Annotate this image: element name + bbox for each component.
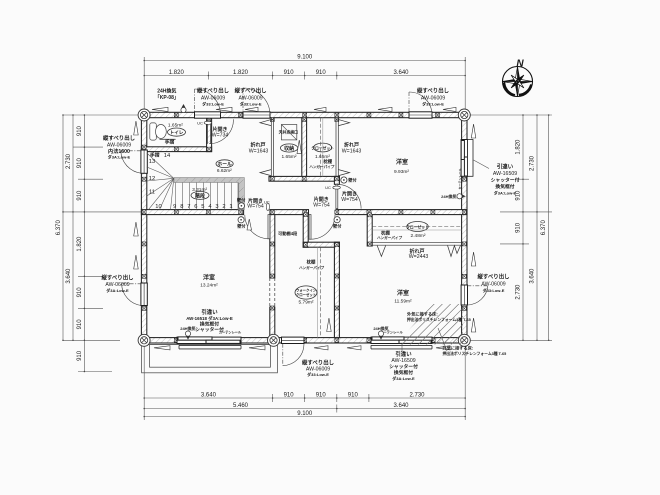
svg-text:W=734: W=734 bbox=[212, 132, 229, 138]
svg-text:「KP-08」: 「KP-08」 bbox=[155, 94, 179, 101]
svg-text:洋室: 洋室 bbox=[397, 289, 409, 297]
svg-text:洋室: 洋室 bbox=[396, 158, 408, 166]
svg-text:縦すべり出し: 縦すべり出し bbox=[302, 358, 334, 366]
svg-text:12: 12 bbox=[149, 176, 155, 182]
svg-text:2: 2 bbox=[222, 204, 225, 210]
svg-text:クローゼット: クローゼット bbox=[296, 292, 316, 297]
svg-text:24H換気: 24H換気 bbox=[180, 325, 195, 331]
svg-text:9.93m²: 9.93m² bbox=[394, 169, 409, 175]
svg-text:3.640: 3.640 bbox=[530, 268, 536, 284]
svg-text:10: 10 bbox=[155, 204, 161, 210]
svg-text:910: 910 bbox=[77, 125, 83, 136]
svg-text:910: 910 bbox=[316, 393, 327, 399]
svg-text:縦すべり出し: 縦すべり出し bbox=[103, 134, 135, 142]
svg-text:天井点検口: 天井点検口 bbox=[279, 129, 299, 134]
svg-text:壁付: 壁付 bbox=[237, 196, 246, 203]
svg-text:2.730: 2.730 bbox=[530, 155, 536, 171]
svg-text:ウォークイン: ウォークイン bbox=[296, 287, 317, 292]
svg-text:3: 3 bbox=[215, 204, 218, 210]
svg-text:シャッター付: シャッター付 bbox=[491, 177, 520, 184]
svg-text:11: 11 bbox=[149, 190, 155, 196]
svg-text:ダ33:Low-E: ダ33:Low-E bbox=[483, 287, 505, 293]
svg-text:5.79m²: 5.79m² bbox=[299, 300, 314, 306]
svg-text:ダ33:Low-E: ダ33:Low-E bbox=[422, 100, 444, 106]
svg-text:5: 5 bbox=[201, 204, 204, 210]
svg-text:6.62m²: 6.62m² bbox=[217, 168, 232, 174]
svg-text:収納: 収納 bbox=[284, 145, 294, 152]
svg-text:1.820: 1.820 bbox=[169, 70, 185, 76]
svg-text:W=1643: W=1643 bbox=[249, 148, 269, 154]
svg-text:24H換気: 24H換気 bbox=[157, 87, 176, 94]
svg-text:AW-16509: AW-16509 bbox=[391, 358, 415, 364]
svg-text:13: 13 bbox=[149, 159, 155, 165]
svg-text:縦すべり出し: 縦すべり出し bbox=[102, 274, 134, 282]
svg-text:24H換気: 24H換気 bbox=[373, 325, 388, 331]
svg-text:トイレ: トイレ bbox=[170, 130, 184, 135]
svg-text:ダ33:Low-E: ダ33:Low-E bbox=[307, 371, 329, 377]
svg-text:換気框付: 換気框付 bbox=[495, 183, 514, 190]
svg-text:換気框付: 換気框付 bbox=[200, 320, 219, 327]
svg-text:ダ33:Low-E: ダ33:Low-E bbox=[240, 100, 262, 106]
svg-text:換気框付: 換気框付 bbox=[394, 369, 413, 376]
svg-text:UC: UC bbox=[197, 121, 203, 126]
svg-text:ダ33:Low-E: ダ33:Low-E bbox=[202, 100, 224, 106]
svg-text:壁付: 壁付 bbox=[237, 222, 246, 229]
svg-text:910: 910 bbox=[77, 190, 83, 201]
svg-text:可動棚4段: 可動棚4段 bbox=[278, 230, 298, 237]
svg-text:14: 14 bbox=[164, 153, 171, 159]
svg-text:引違い: 引違い bbox=[395, 350, 412, 358]
svg-text:W=1643: W=1643 bbox=[342, 148, 362, 154]
svg-text:1: 1 bbox=[229, 204, 232, 210]
svg-text:3.640: 3.640 bbox=[201, 393, 217, 399]
svg-text:2.730: 2.730 bbox=[66, 153, 72, 169]
svg-text:9.100: 9.100 bbox=[297, 411, 313, 417]
svg-text:ダ3A:Low-E: ダ3A:Low-E bbox=[106, 287, 129, 293]
svg-text:階段: 階段 bbox=[195, 192, 205, 199]
svg-text:ハンガーパイプ: ハンガーパイプ bbox=[299, 265, 325, 270]
svg-text:910: 910 bbox=[77, 158, 83, 169]
svg-text:手摺: 手摺 bbox=[150, 152, 160, 159]
svg-text:UC: UC bbox=[325, 185, 331, 190]
svg-text:2.730: 2.730 bbox=[409, 393, 425, 399]
svg-text:押出法ポリスチレンフォーム3種 T-65: 押出法ポリスチレンフォーム3種 T-65 bbox=[443, 351, 507, 356]
svg-text:壁付: 壁付 bbox=[348, 177, 357, 184]
svg-text:910: 910 bbox=[77, 350, 83, 361]
svg-text:910: 910 bbox=[284, 393, 295, 399]
svg-text:カーテンレール: カーテンレール bbox=[219, 330, 242, 335]
svg-text:6.370: 6.370 bbox=[56, 220, 62, 236]
svg-text:910: 910 bbox=[77, 319, 83, 330]
svg-text:外気に接する床:: 外気に接する床: bbox=[407, 310, 438, 317]
svg-text:1.65m²: 1.65m² bbox=[168, 123, 183, 129]
svg-text:5.460: 5.460 bbox=[233, 403, 249, 409]
svg-text:押出法ポリスチレンフォーム3種 T-65: 押出法ポリスチレンフォーム3種 T-65 bbox=[407, 317, 471, 322]
svg-text:ダ3A:Low-E: ダ3A:Low-E bbox=[108, 154, 131, 160]
svg-text:1.820: 1.820 bbox=[77, 236, 83, 252]
svg-text:1.820: 1.820 bbox=[516, 139, 522, 155]
svg-text:8: 8 bbox=[180, 204, 183, 210]
svg-text:7: 7 bbox=[187, 204, 190, 210]
svg-text:縦すべり出し: 縦すべり出し bbox=[478, 273, 510, 281]
svg-text:縦すべり出し: 縦すべり出し bbox=[417, 86, 449, 94]
svg-text:AW-06009: AW-06009 bbox=[481, 281, 505, 287]
svg-text:手摺: 手摺 bbox=[165, 138, 175, 145]
svg-text:9.100: 9.100 bbox=[297, 55, 313, 61]
svg-text:N: N bbox=[516, 59, 524, 70]
svg-text:910: 910 bbox=[77, 287, 83, 298]
svg-text:3.640: 3.640 bbox=[393, 403, 409, 409]
svg-text:引違い: 引違い bbox=[497, 163, 514, 171]
svg-text:ダ3A:Low-E: ダ3A:Low-E bbox=[392, 375, 415, 381]
svg-text:910: 910 bbox=[348, 393, 359, 399]
svg-text:910: 910 bbox=[284, 70, 295, 76]
svg-text:W=754: W=754 bbox=[341, 197, 358, 203]
svg-text:外気に接する床:: 外気に接する床: bbox=[443, 345, 474, 352]
svg-text:1.820: 1.820 bbox=[233, 70, 249, 76]
svg-text:縦すべり出し: 縦すべり出し bbox=[197, 86, 229, 94]
svg-text:ホール: ホール bbox=[217, 161, 232, 168]
svg-text:2.730: 2.730 bbox=[516, 284, 522, 300]
svg-text:ダ3A:Low-E: ダ3A:Low-E bbox=[494, 190, 517, 196]
svg-text:3.31m²: 3.31m² bbox=[192, 187, 207, 193]
svg-text:910: 910 bbox=[516, 190, 522, 201]
svg-text:6: 6 bbox=[194, 204, 197, 210]
svg-text:シャッター付: シャッター付 bbox=[389, 363, 418, 370]
svg-text:縦すべり出し: 縦すべり出し bbox=[235, 86, 267, 94]
svg-text:11.59m²: 11.59m² bbox=[394, 299, 412, 305]
svg-text:ハンガーパイプ: ハンガーパイプ bbox=[309, 164, 335, 169]
svg-text:910: 910 bbox=[516, 222, 522, 233]
svg-text:3.640: 3.640 bbox=[66, 268, 72, 284]
svg-text:W=754: W=754 bbox=[247, 204, 264, 210]
svg-text:910: 910 bbox=[316, 70, 327, 76]
svg-text:枕棚: 枕棚 bbox=[307, 258, 316, 265]
svg-text:9: 9 bbox=[173, 204, 176, 210]
svg-text:W=2443: W=2443 bbox=[409, 254, 429, 260]
svg-text:洋室: 洋室 bbox=[203, 274, 215, 282]
svg-text:AW-16509: AW-16509 bbox=[493, 171, 517, 177]
svg-text:AW-06009: AW-06009 bbox=[107, 143, 131, 149]
svg-text:カーテンレール: カーテンレール bbox=[457, 168, 462, 189]
svg-text:W=754: W=754 bbox=[313, 202, 330, 208]
svg-text:ハンガーパイプ: ハンガーパイプ bbox=[377, 235, 403, 240]
svg-text:13.24m²: 13.24m² bbox=[200, 283, 218, 289]
svg-text:2.48m²: 2.48m² bbox=[411, 233, 426, 239]
svg-text:AW-16518 ダ3A:Low-E: AW-16518 ダ3A:Low-E bbox=[186, 315, 233, 322]
svg-text:3.640: 3.640 bbox=[393, 70, 409, 76]
svg-text:1.65m²: 1.65m² bbox=[282, 154, 297, 160]
svg-text:24H換気: 24H換気 bbox=[441, 193, 456, 199]
svg-text:壁付: 壁付 bbox=[333, 222, 342, 229]
svg-text:6.370: 6.370 bbox=[541, 220, 547, 236]
